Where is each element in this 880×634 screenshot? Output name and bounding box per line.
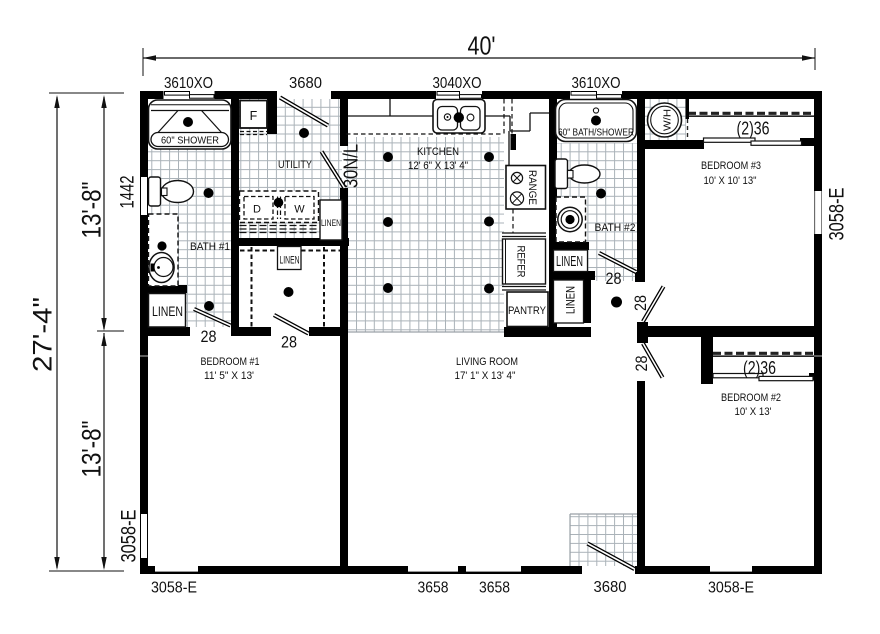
svg-text:28: 28: [606, 270, 622, 288]
svg-text:BATH #1: BATH #1: [190, 241, 230, 253]
svg-text:BEDROOM #2: BEDROOM #2: [721, 392, 781, 404]
svg-text:BEDROOM #3: BEDROOM #3: [701, 160, 761, 172]
svg-text:W: W: [294, 204, 305, 216]
svg-text:28: 28: [281, 334, 297, 352]
svg-text:12' 6" X 13' 4": 12' 6" X 13' 4": [408, 160, 468, 172]
svg-text:3680: 3680: [289, 75, 322, 92]
svg-text:3058-E: 3058-E: [826, 188, 849, 241]
svg-text:LINEN: LINEN: [280, 255, 300, 267]
svg-text:17' 1" X 13' 4": 17' 1" X 13' 4": [455, 370, 516, 382]
svg-text:RANGE: RANGE: [526, 170, 538, 205]
svg-text:BATH #2: BATH #2: [595, 222, 636, 234]
svg-text:3058-E: 3058-E: [708, 580, 754, 597]
svg-text:LINEN: LINEN: [556, 253, 583, 270]
svg-text:LIVING ROOM: LIVING ROOM: [456, 356, 518, 368]
svg-text:LINEN: LINEN: [564, 286, 578, 314]
svg-text:10' X 10' 13": 10' X 10' 13": [704, 175, 757, 187]
svg-text:3040XO: 3040XO: [433, 75, 482, 92]
svg-text:3058-E: 3058-E: [151, 580, 197, 597]
svg-text:3610XO: 3610XO: [572, 75, 621, 92]
svg-text:10' X 13': 10' X 13': [735, 406, 772, 418]
svg-text:F: F: [250, 109, 258, 123]
svg-text:3658: 3658: [418, 580, 449, 597]
svg-text:UTILITY: UTILITY: [278, 159, 313, 171]
svg-text:28: 28: [632, 295, 650, 311]
svg-text:28: 28: [633, 356, 651, 372]
svg-text:PANTRY: PANTRY: [508, 305, 547, 317]
svg-text:28: 28: [201, 328, 217, 346]
svg-text:(2)36: (2)36: [743, 358, 776, 378]
svg-text:3610XO: 3610XO: [164, 75, 213, 92]
svg-text:60" BATH/SHOWER: 60" BATH/SHOWER: [558, 128, 634, 139]
svg-text:1442: 1442: [118, 176, 139, 209]
svg-text:BEDROOM #1: BEDROOM #1: [201, 356, 260, 368]
svg-text:KITCHEN: KITCHEN: [417, 146, 459, 158]
svg-text:3680: 3680: [594, 579, 627, 596]
svg-text:LINEN: LINEN: [321, 218, 341, 228]
svg-text:13'-8": 13'-8": [77, 421, 107, 478]
svg-text:27'-4": 27'-4": [28, 297, 58, 372]
svg-text:REFER: REFER: [515, 246, 527, 278]
svg-text:40': 40': [468, 31, 496, 61]
svg-text:60" SHOWER: 60" SHOWER: [161, 135, 219, 147]
svg-text:3058-E: 3058-E: [118, 510, 141, 563]
svg-text:11' 5" X 13': 11' 5" X 13': [204, 370, 254, 382]
svg-text:LINEN: LINEN: [152, 303, 183, 319]
svg-text:(2)36: (2)36: [737, 119, 770, 139]
svg-text:30N/L: 30N/L: [341, 144, 363, 188]
svg-text:D: D: [253, 204, 261, 216]
svg-text:3658: 3658: [479, 580, 510, 597]
svg-text:W/H: W/H: [663, 109, 674, 131]
svg-text:13'-8": 13'-8": [77, 182, 107, 239]
